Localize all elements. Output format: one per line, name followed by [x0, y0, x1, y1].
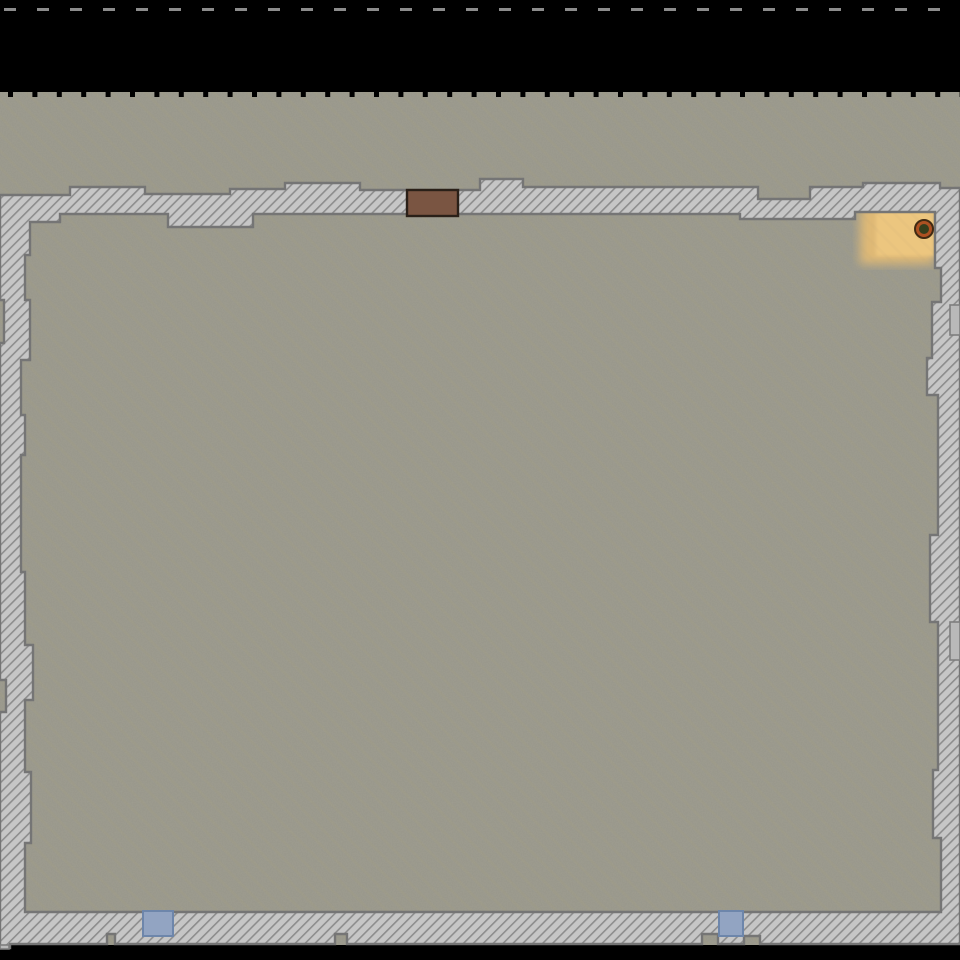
- floor-edge-tick: [252, 92, 257, 97]
- void-boundary-dash: [334, 8, 346, 11]
- void-boundary-dash: [829, 8, 841, 11]
- floor-edge-tick: [81, 92, 86, 97]
- floor-edge-tick: [838, 92, 843, 97]
- floor-edge-tick: [228, 92, 233, 97]
- void-boundary-dash: [169, 8, 181, 11]
- floor-edge-tick: [8, 92, 13, 97]
- void-boundary-dash: [4, 8, 16, 11]
- void-boundary-dash: [301, 8, 313, 11]
- edge-wall-notch: [950, 305, 960, 335]
- floor-edge-tick: [325, 92, 330, 97]
- void-boundary-dash: [697, 8, 709, 11]
- floor-edge-tick: [496, 92, 501, 97]
- void-boundary-dash: [400, 8, 412, 11]
- void-boundary-dash: [499, 8, 511, 11]
- floor-edge-tick: [569, 92, 574, 97]
- floor-edge-tick: [154, 92, 159, 97]
- void-boundary-dash: [235, 8, 247, 11]
- void-boundary-dash: [70, 8, 82, 11]
- floor-edge-tick: [350, 92, 355, 97]
- game-viewport[interactable]: [0, 0, 960, 960]
- floor-edge-tick: [301, 92, 306, 97]
- edge-wall-notch: [0, 945, 9, 949]
- floor-edge-tick: [886, 92, 891, 97]
- floor-edge-tick: [911, 92, 916, 97]
- void-boundary-dash: [895, 8, 907, 11]
- void-boundary-dash: [631, 8, 643, 11]
- floor-edge-tick: [642, 92, 647, 97]
- void-boundary-dash: [664, 8, 676, 11]
- void-boundary-dash: [202, 8, 214, 11]
- floor-edge-tick: [813, 92, 818, 97]
- floor-edge-tick: [716, 92, 721, 97]
- floor-edge-tick: [447, 92, 452, 97]
- floor-edge-tick: [691, 92, 696, 97]
- floor-edge-tick: [57, 92, 62, 97]
- entity-token-core[interactable]: [919, 224, 929, 234]
- edge-wall-notch: [950, 622, 960, 660]
- void-boundary-dash: [862, 8, 874, 11]
- void-boundary-dash: [730, 8, 742, 11]
- void-boundary-dash: [565, 8, 577, 11]
- void-boundary-dash: [367, 8, 379, 11]
- floor-edge-tick: [740, 92, 745, 97]
- floor-edge-tick: [374, 92, 379, 97]
- window[interactable]: [719, 911, 743, 936]
- floor-edge-tick: [179, 92, 184, 97]
- void-boundary-dash: [103, 8, 115, 11]
- floor-edge-tick: [520, 92, 525, 97]
- floor-edge-tick: [618, 92, 623, 97]
- floor-edge-tick: [935, 92, 940, 97]
- void-boundary-dash: [928, 8, 940, 11]
- void-boundary-dash: [136, 8, 148, 11]
- map-canvas[interactable]: [0, 0, 960, 960]
- floor-edge-tick: [106, 92, 111, 97]
- void-boundary-dash: [532, 8, 544, 11]
- floor-edge-tick: [594, 92, 599, 97]
- door[interactable]: [407, 190, 458, 216]
- floor-edge-tick: [398, 92, 403, 97]
- void-boundary-dash: [466, 8, 478, 11]
- floor-edge-tick: [423, 92, 428, 97]
- floor-edge-tick: [32, 92, 37, 97]
- void-boundary-dash: [268, 8, 280, 11]
- void-boundary-dash: [598, 8, 610, 11]
- void-boundary-dash: [433, 8, 445, 11]
- void-boundary-dash: [763, 8, 775, 11]
- floor-edge-tick: [203, 92, 208, 97]
- floor-edge-tick: [276, 92, 281, 97]
- window[interactable]: [143, 911, 173, 936]
- floor-edge-tick: [472, 92, 477, 97]
- floor-edge-tick: [789, 92, 794, 97]
- floor-edge-tick: [667, 92, 672, 97]
- floor-edge-tick: [130, 92, 135, 97]
- void-boundary-dash: [796, 8, 808, 11]
- floor-edge-tick: [764, 92, 769, 97]
- floor-edge-tick: [545, 92, 550, 97]
- floor-edge-tick: [862, 92, 867, 97]
- void-boundary-dash: [37, 8, 49, 11]
